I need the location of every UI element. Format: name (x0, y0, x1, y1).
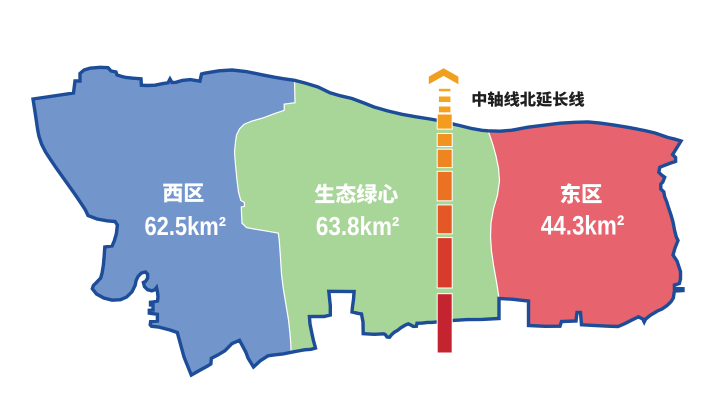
svg-text:62.5km²: 62.5km² (145, 211, 227, 241)
svg-text:63.8km²: 63.8km² (316, 211, 400, 241)
svg-text:44.3km²: 44.3km² (541, 211, 625, 241)
